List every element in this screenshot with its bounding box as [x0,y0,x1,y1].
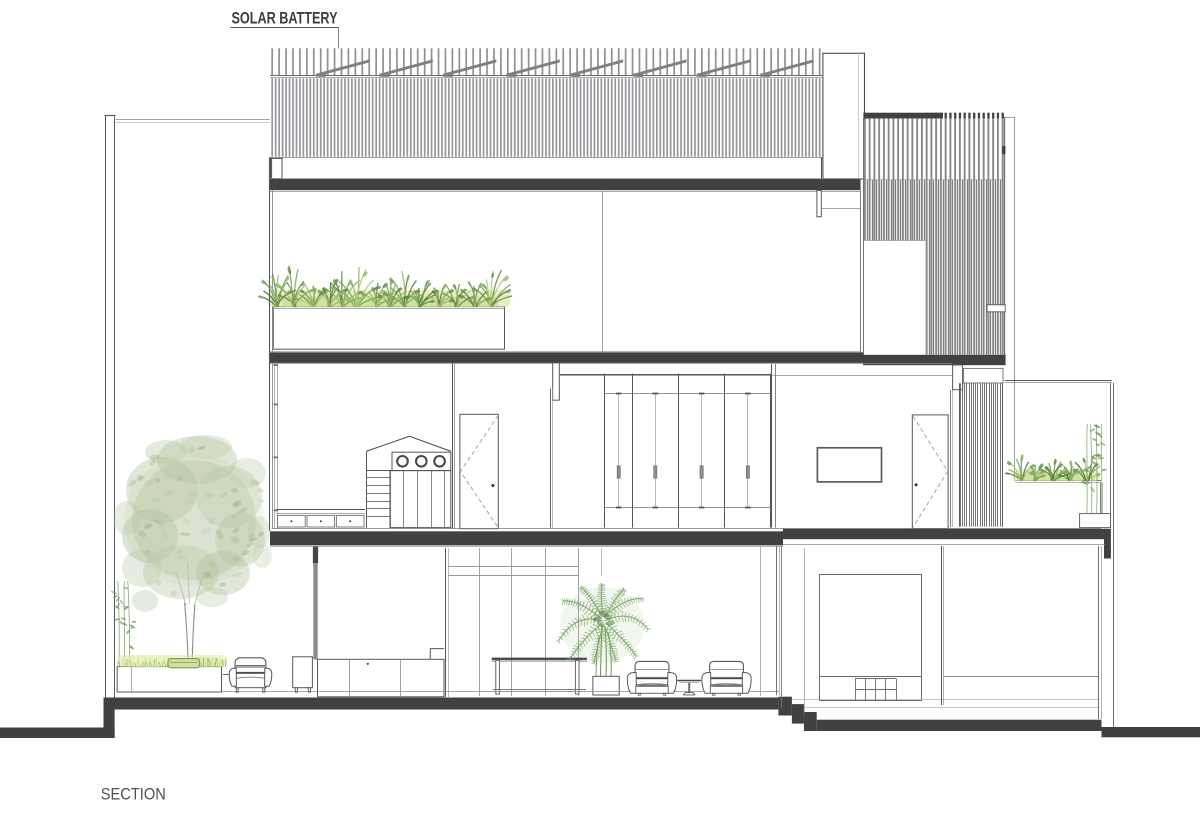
svg-text:SECTION: SECTION [101,785,166,803]
svg-text:SOLAR BATTERY: SOLAR BATTERY [232,10,338,28]
